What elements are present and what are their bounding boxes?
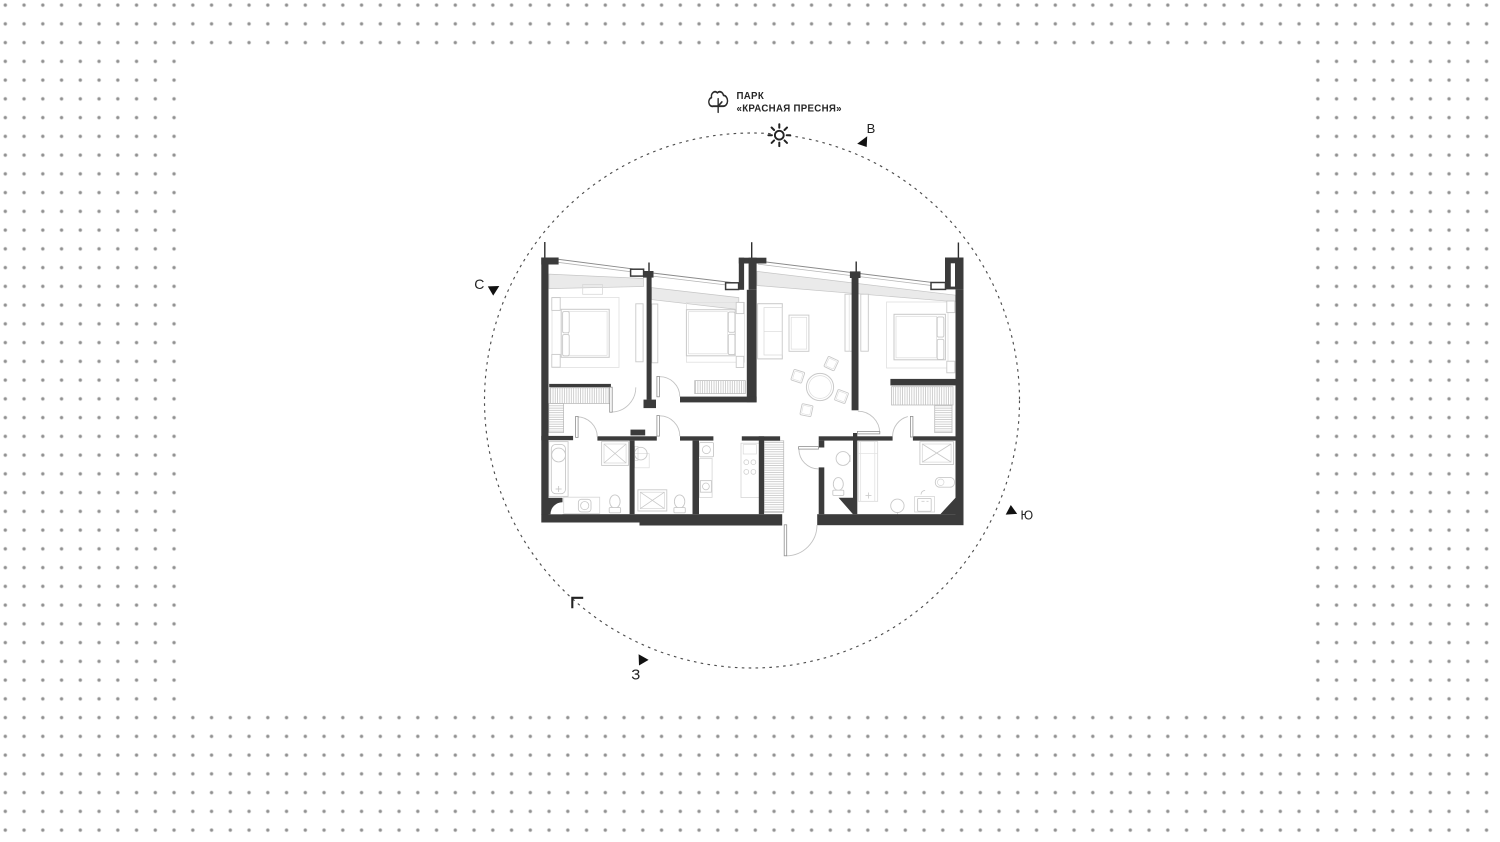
svg-text:«КРАСНАЯ ПРЕСНЯ»: «КРАСНАЯ ПРЕСНЯ» — [737, 104, 842, 115]
svg-text:Ю: Ю — [1021, 509, 1034, 523]
svg-text:З: З — [631, 666, 640, 683]
svg-text:С: С — [474, 276, 484, 292]
svg-text:В: В — [867, 121, 876, 136]
svg-text:ПАРК: ПАРК — [737, 91, 765, 102]
